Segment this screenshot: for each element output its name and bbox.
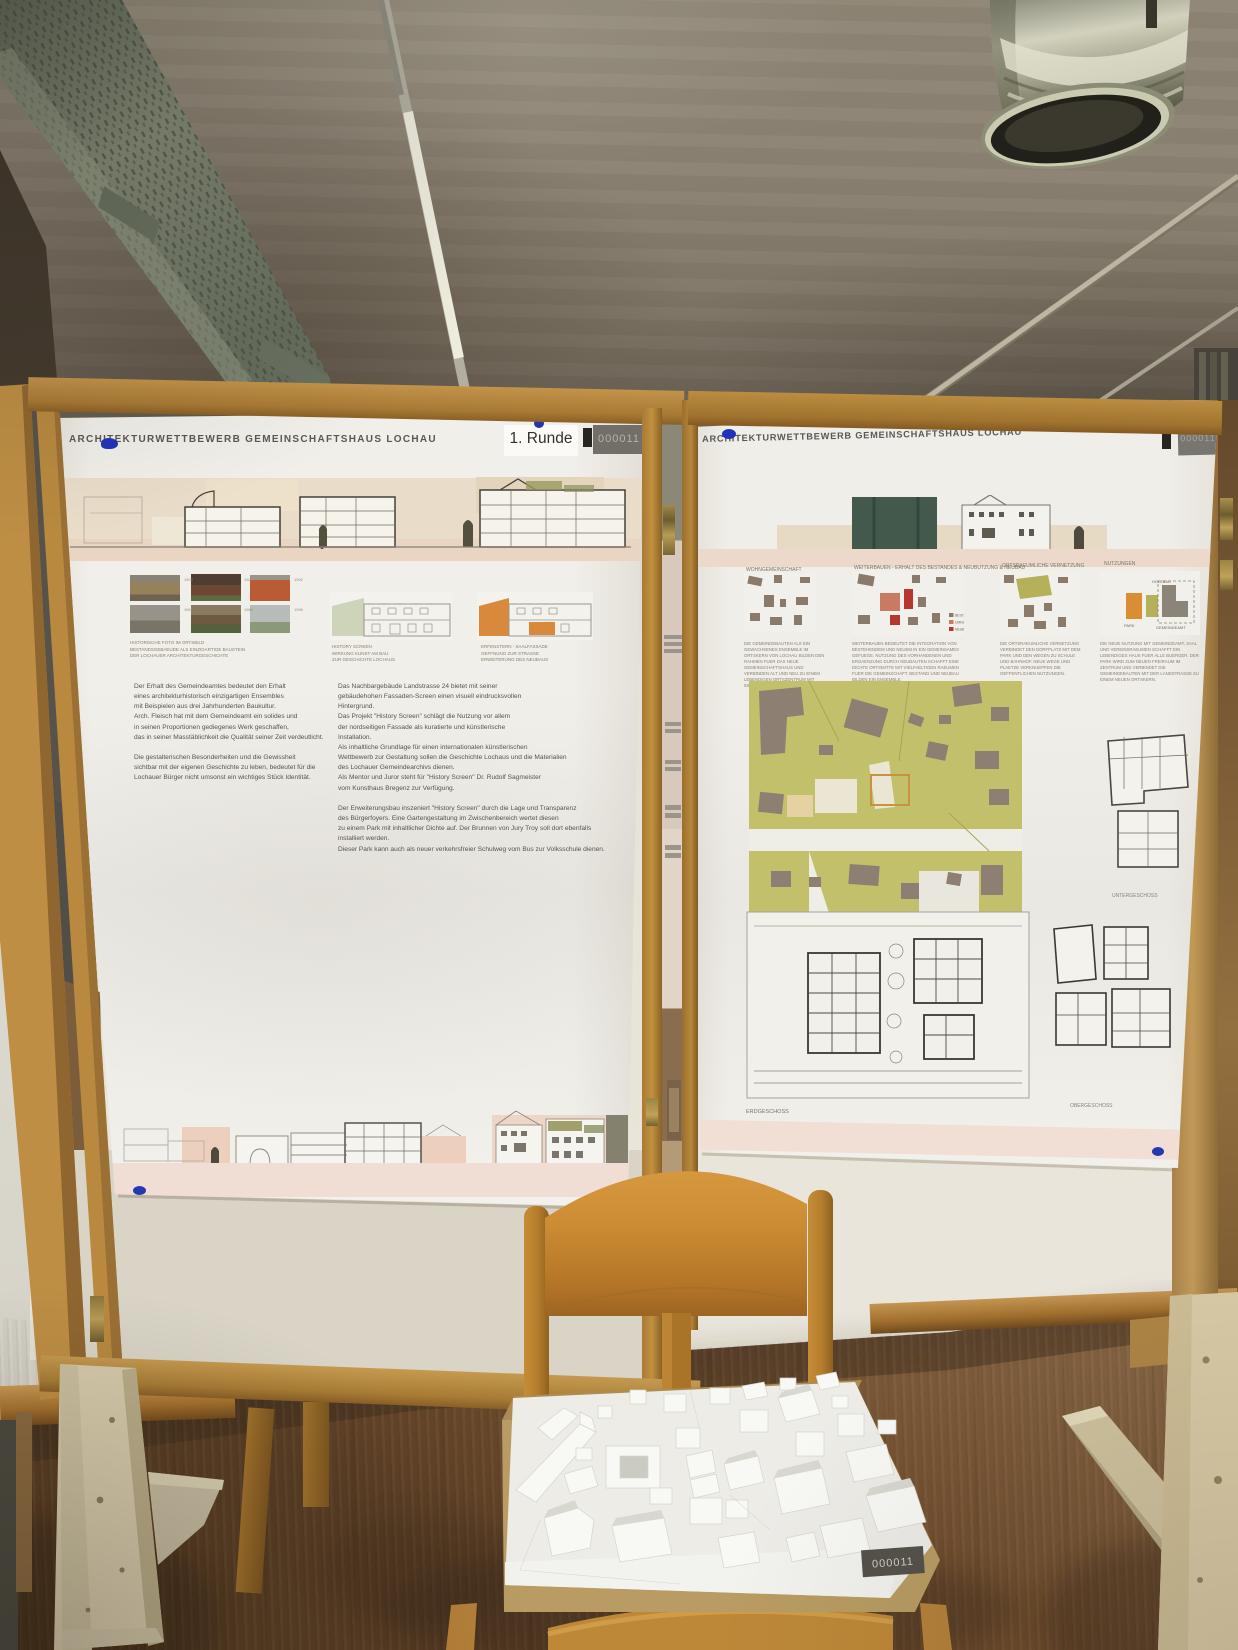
svg-text:PARK: PARK — [1124, 623, 1135, 628]
svg-text:HOLZBAU: HOLZBAU — [1152, 579, 1171, 584]
svg-text:BESTAND: BESTAND — [955, 614, 964, 618]
svg-text:GEMEINDEAMT: GEMEINDEAMT — [1156, 625, 1186, 630]
svg-text:UMNUTZUNG: UMNUTZUNG — [955, 621, 964, 625]
svg-text:NEUBAU: NEUBAU — [955, 628, 964, 632]
